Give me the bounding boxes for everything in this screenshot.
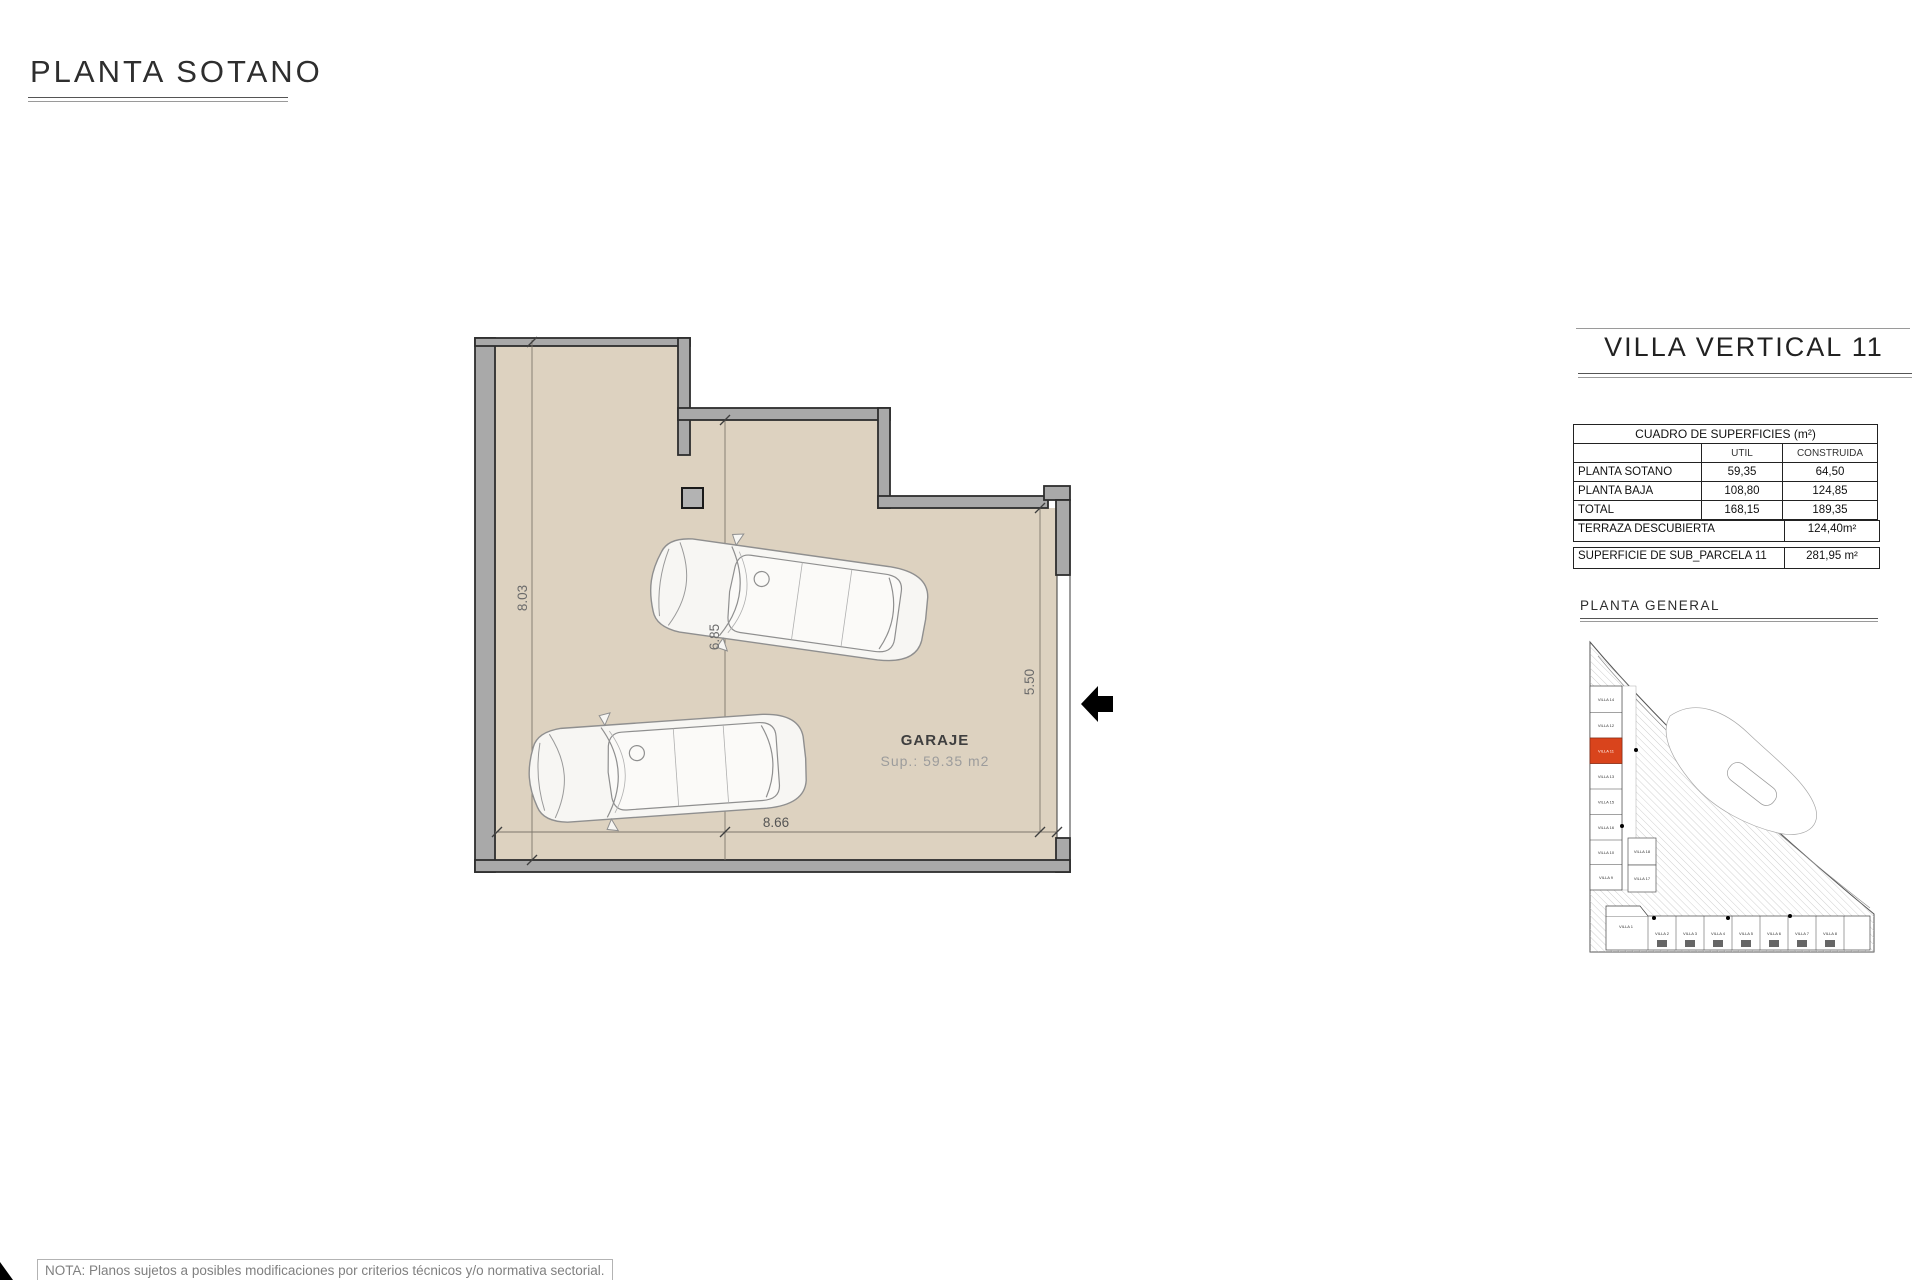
villa-middle-blocks: VILLA 18 VILLA 17 — [1628, 838, 1656, 892]
parcela-label: SUPERFICIE DE SUB_PARCELA 11 — [1574, 548, 1784, 568]
wall-step-1 — [678, 338, 690, 455]
surface-table: CUADRO DE SUPERFICIES (m²) UTIL CONSTRUI… — [1573, 424, 1878, 520]
site-plan-underline — [1580, 618, 1878, 619]
villa-label: VILLA 13 — [1598, 774, 1615, 779]
dim-inner: 6.85 — [707, 624, 722, 650]
table-row: PLANTA SOTANO 59,35 64,50 — [1574, 463, 1878, 482]
villa-label: VILLA 4 — [1711, 931, 1726, 936]
parcela-box: SUPERFICIE DE SUB_PARCELA 11 281,95 m² — [1573, 547, 1880, 569]
villa-label: VILLA 5 — [1739, 931, 1754, 936]
row-label: PLANTA BAJA — [1574, 482, 1702, 501]
table-row: TOTAL 168,15 189,35 — [1574, 501, 1878, 520]
note-text: NOTA: Planos sujetos a posibles modifica… — [45, 1263, 605, 1278]
villa-label: VILLA 12 — [1598, 723, 1615, 728]
dim-bottom: 8.66 — [763, 815, 789, 830]
column — [682, 488, 703, 508]
dim-right: 5.50 — [1022, 669, 1037, 695]
table-row: PLANTA BAJA 108,80 124,85 — [1574, 482, 1878, 501]
wall-cap-right — [1044, 486, 1070, 500]
row-construida: 189,35 — [1783, 501, 1878, 520]
terraza-value: 124,40m² — [1784, 521, 1879, 541]
villa-label: VILLA 1 — [1619, 924, 1634, 929]
row-label: TOTAL — [1574, 501, 1702, 520]
col-util: UTIL — [1702, 444, 1783, 463]
blueprint-page: PLANTA SOTANO — [0, 0, 1920, 1280]
villa-label: VILLA 9 — [1599, 875, 1614, 880]
wall-right-upper — [1056, 500, 1070, 575]
surface-table-corner — [1574, 444, 1702, 463]
surface-table-header: CUADRO DE SUPERFICIES (m²) — [1574, 425, 1878, 444]
wall-step-2 — [878, 408, 890, 508]
row-construida: 124,85 — [1783, 482, 1878, 501]
villa-title-underline-2 — [1578, 377, 1912, 378]
room-label: GARAJE — [901, 732, 970, 749]
villa-label: VILLA 2 — [1655, 931, 1670, 936]
title-underline-2 — [28, 101, 288, 102]
villa-label: VILLA 10 — [1598, 850, 1615, 855]
terraza-box: TERRAZA DESCUBIERTA 124,40m² — [1573, 520, 1880, 542]
wall-top-3 — [878, 496, 1048, 508]
row-util: 168,15 — [1702, 501, 1783, 520]
panel-topline — [1576, 328, 1910, 329]
villa-label: VILLA 7 — [1795, 931, 1810, 936]
villa-label-highlighted: VILLA 11 — [1598, 749, 1615, 754]
row-label: PLANTA SOTANO — [1574, 463, 1702, 482]
villa-label: VILLA 3 — [1683, 931, 1698, 936]
row-construida: 64,50 — [1783, 463, 1878, 482]
corner-mark — [0, 1262, 13, 1280]
parcela-value: 281,95 m² — [1784, 548, 1879, 568]
villa-label: VILLA 15 — [1598, 800, 1615, 805]
dim-left: 8.03 — [515, 585, 530, 611]
site-plan-title: PLANTA GENERAL — [1580, 598, 1720, 613]
villa-label: VILLA 8 — [1823, 931, 1838, 936]
villa-label: VILLA 16 — [1598, 825, 1615, 830]
site-plan-underline-2 — [1580, 621, 1878, 622]
terraza-label: TERRAZA DESCUBIERTA — [1574, 521, 1784, 541]
row-util: 108,80 — [1702, 482, 1783, 501]
row-util: 59,35 — [1702, 463, 1783, 482]
title-underline — [28, 97, 288, 98]
villa-label: VILLA 6 — [1767, 931, 1782, 936]
villa-title: VILLA VERTICAL 11 — [1576, 332, 1912, 363]
col-construida: CONSTRUIDA — [1783, 444, 1878, 463]
page-title: PLANTA SOTANO — [30, 54, 323, 90]
villa-title-underline — [1578, 373, 1912, 374]
villa-label: VILLA 17 — [1634, 876, 1651, 881]
garage-door-opening — [1057, 575, 1070, 838]
wall-left — [475, 338, 495, 872]
entrance-arrow-icon — [1081, 686, 1113, 722]
wall-bottom — [475, 860, 1070, 872]
villa-column: VILLA 14 VILLA 12 VILLA 11 VILLA 13 VILL… — [1590, 686, 1622, 890]
villa-label: VILLA 18 — [1634, 849, 1651, 854]
note-box: NOTA: Planos sujetos a posibles modifica… — [37, 1259, 613, 1280]
villa-label: VILLA 14 — [1598, 697, 1615, 702]
wall-top-2 — [678, 408, 890, 420]
room-area-label: Sup.: 59.35 m2 — [881, 753, 990, 769]
floor-plan-drawing: 8.03 6.85 5.50 8.66 GARAJE Sup.: 59.35 m… — [440, 320, 1180, 920]
wall-top-1 — [475, 338, 690, 346]
site-plan-drawing: VILLA 14 VILLA 12 VILLA 11 VILLA 13 VILL… — [1578, 628, 1878, 958]
